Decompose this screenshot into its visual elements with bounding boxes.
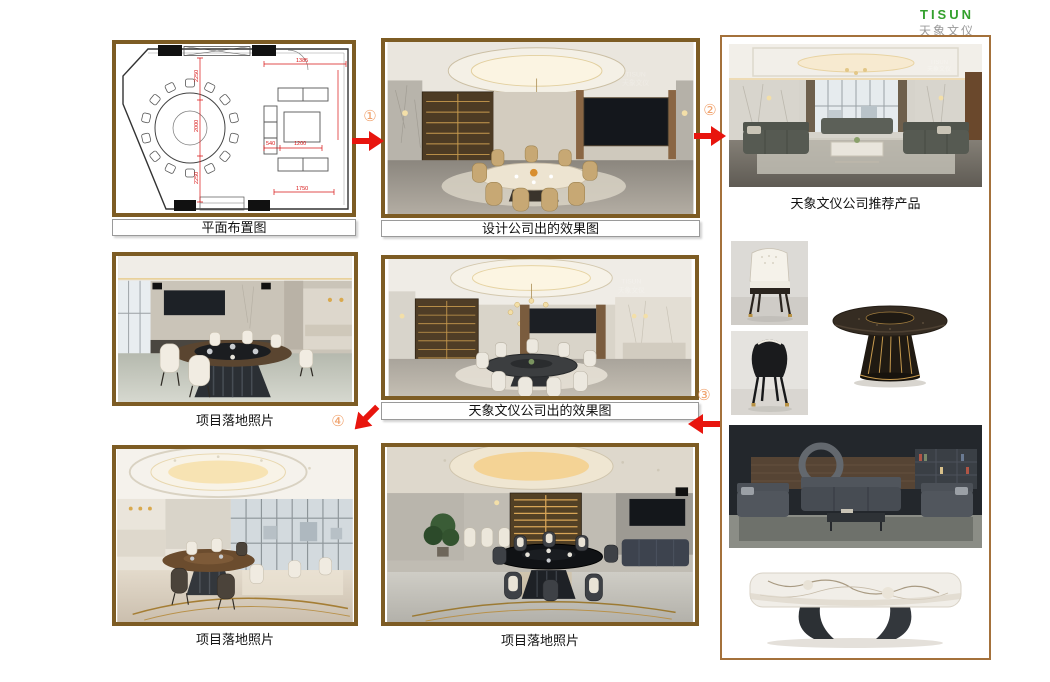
recommended-products-panel: TISUN 天象文仪 天象文仪公司推荐产品 xyxy=(720,35,991,660)
step-1-number: ① xyxy=(358,107,382,125)
site-photo-bl-label: 项目落地照片 xyxy=(112,629,358,648)
speaker xyxy=(676,487,689,496)
design-render-image: TISUN 天象文仪 xyxy=(385,42,696,214)
design-render-label: 设计公司出的效果图 xyxy=(381,220,700,237)
wall-column xyxy=(252,45,276,56)
sofa xyxy=(622,539,689,566)
watermark: TISUN 天象文仪 xyxy=(622,72,649,88)
dim-text: 1750 xyxy=(296,186,308,192)
sofa-set-product xyxy=(729,425,982,548)
pendant-light xyxy=(129,507,133,511)
svg-text:天象文仪: 天象文仪 xyxy=(622,78,649,87)
step-4-number: ④ xyxy=(326,412,350,430)
wall-chairs xyxy=(464,528,510,547)
tv-screen xyxy=(164,290,225,315)
recommended-products-label: 天象文仪公司推荐产品 xyxy=(722,193,989,212)
step-2-arrow-right xyxy=(694,126,726,146)
dim-text: 1200 xyxy=(294,141,306,147)
wall-sconce xyxy=(494,500,499,505)
shadow xyxy=(767,638,943,648)
ceiling-light xyxy=(798,54,914,72)
tv-screen xyxy=(530,308,597,333)
wood-trim xyxy=(576,90,584,159)
svg-text:TISUN: TISUN xyxy=(626,72,646,79)
svg-text:TISUN: TISUN xyxy=(930,60,948,66)
tisun-render-image: TISUN 天象文仪 xyxy=(385,259,695,396)
tv-screen xyxy=(629,499,685,526)
site-photo-bl-panel xyxy=(112,445,358,626)
dim-text: 2250 xyxy=(194,172,200,184)
bar-counter xyxy=(303,288,352,349)
wall-column xyxy=(248,200,270,211)
speaker xyxy=(261,283,271,290)
wall-sconce xyxy=(939,96,944,101)
floor-plan-panel: 2250 2000 2250 1385 540 1200 1750 xyxy=(112,40,356,217)
logo-brand-text: TISUN xyxy=(903,7,991,22)
site-photo-mid-panel xyxy=(112,252,358,406)
pendant-light xyxy=(138,507,142,511)
tisun-render-label: 天象文仪公司出的效果图 xyxy=(381,402,699,420)
wall-sconce xyxy=(400,314,405,319)
wall-sconce xyxy=(767,96,772,101)
step-2-number: ② xyxy=(698,101,722,119)
side-counter xyxy=(117,499,165,557)
window xyxy=(118,281,150,354)
wall-column xyxy=(174,200,196,211)
site-photo-bm-image xyxy=(385,447,695,622)
floor-plan-label: 平面布置图 xyxy=(112,219,356,236)
svg-text:TISUN: TISUN xyxy=(621,279,641,286)
site-photo-bm-label: 项目落地照片 xyxy=(381,630,699,649)
wood-trim xyxy=(668,90,676,159)
coffee-table-product xyxy=(738,551,973,652)
site-photo-bm-panel xyxy=(381,443,699,626)
floor-plan-image: 2250 2000 2250 1385 540 1200 1750 xyxy=(116,44,352,213)
pendant-light xyxy=(339,298,343,302)
wall-sconce xyxy=(402,110,408,116)
cove-light xyxy=(168,461,268,484)
black-chair-product xyxy=(731,331,808,415)
svg-text:天象文仪: 天象文仪 xyxy=(618,285,645,294)
dim-text: 1385 xyxy=(296,58,308,64)
tisun-render-panel: TISUN 天象文仪 xyxy=(381,255,699,400)
presentation-board: TISUN 天象文仪 xyxy=(0,0,1050,682)
round-table-product xyxy=(825,287,955,393)
pendant-light xyxy=(148,507,152,511)
wall-column xyxy=(158,45,182,56)
design-render-panel: TISUN 天象文仪 xyxy=(381,38,700,218)
white-chair-product xyxy=(731,241,808,325)
step-3-arrow-left xyxy=(688,414,720,434)
living-room-render: TISUN 天象文仪 xyxy=(729,44,982,187)
site-photo-bl-image xyxy=(116,449,354,622)
site-photo-mid-label: 项目落地照片 xyxy=(112,410,358,429)
sofa-set xyxy=(737,477,973,517)
watermark: TISUN 天象文仪 xyxy=(927,60,951,73)
pendant-light xyxy=(643,314,648,319)
wood-trim xyxy=(596,305,606,364)
wall-sconce xyxy=(682,110,688,116)
svg-text:天象文仪: 天象文仪 xyxy=(927,65,951,73)
dim-text: 2000 xyxy=(194,120,200,132)
dim-text: 2250 xyxy=(194,70,200,82)
pendant-light xyxy=(328,298,332,302)
pillar xyxy=(284,281,303,350)
site-photo-mid-image xyxy=(116,256,354,402)
step-1-arrow-right xyxy=(352,131,384,151)
step-3-number: ③ xyxy=(692,386,716,404)
tv-screen xyxy=(584,98,669,146)
dim-text: 540 xyxy=(266,141,275,147)
pendant-light xyxy=(632,314,637,319)
cove-light xyxy=(474,452,589,481)
watermark: TISUN 天象文仪 xyxy=(618,279,645,295)
ceiling xyxy=(118,256,352,281)
speaker xyxy=(152,283,162,290)
